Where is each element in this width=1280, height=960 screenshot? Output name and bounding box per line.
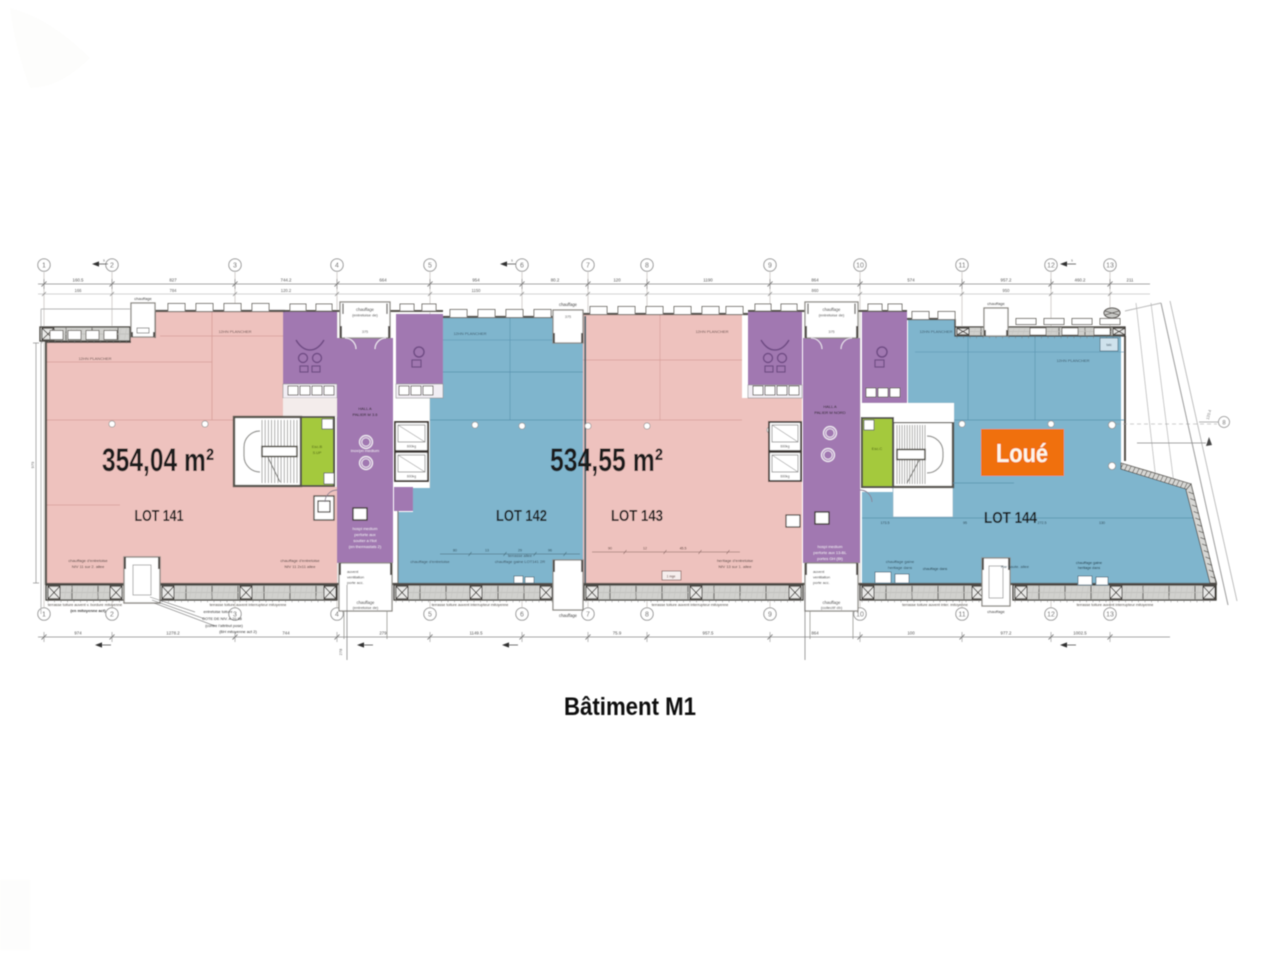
svg-text:LOT 144: LOT 144: [984, 510, 1037, 527]
svg-text:166: 166: [75, 288, 83, 293]
svg-text:(entretoise de): (entretoise de): [819, 313, 845, 318]
svg-text:96: 96: [548, 549, 552, 553]
svg-text:10: 10: [856, 612, 864, 619]
svg-text:744: 744: [282, 631, 290, 636]
svg-text:950: 950: [1003, 288, 1011, 293]
svg-text:Esc.B: Esc.B: [312, 444, 323, 449]
svg-text:864: 864: [811, 278, 819, 283]
svg-text:COTE DE NIV. A 20.88: COTE DE NIV. A 20.88: [202, 616, 242, 621]
svg-text:perforte aux: perforte aux: [354, 532, 375, 537]
svg-text:terrasse toiture auvent v. bor: terrasse toiture auvent v. bordure mitoy…: [48, 603, 122, 607]
svg-text:Loué: Loué: [996, 438, 1048, 468]
svg-text:864: 864: [811, 631, 819, 636]
svg-text:NIV 13 sur 1. allee: NIV 13 sur 1. allee: [719, 564, 753, 569]
svg-text:6: 6: [520, 612, 524, 619]
svg-text:(BH mitoyenne act 2): (BH mitoyenne act 2): [219, 629, 257, 634]
svg-text:534,55 m²: 534,55 m²: [550, 442, 663, 478]
svg-text:entretoise toiture: entretoise toiture: [204, 609, 233, 614]
svg-text:600kg: 600kg: [780, 445, 789, 449]
svg-text:130: 130: [1099, 521, 1105, 525]
svg-text:12HN PLANCHER: 12HN PLANCHER: [695, 329, 728, 334]
svg-text:12HN PLANCHER: 12HN PLANCHER: [78, 356, 111, 361]
svg-text:soutier a l'ilot: soutier a l'ilot: [353, 538, 377, 543]
svg-text:PALIER M 3.6: PALIER M 3.6: [352, 412, 378, 417]
svg-text:75.9: 75.9: [613, 631, 622, 636]
svg-text:terrasse toiture auvent inter.: terrasse toiture auvent inter. mitoyenne: [902, 603, 968, 607]
svg-text:45.5: 45.5: [680, 547, 687, 551]
svg-text:chauffage d'entretoise: chauffage d'entretoise: [68, 558, 108, 563]
svg-text:120.2: 120.2: [281, 288, 292, 293]
svg-text:12: 12: [643, 547, 647, 551]
svg-text:574: 574: [907, 278, 915, 283]
svg-text:11: 11: [958, 263, 965, 270]
svg-text:hospi medium: hospi medium: [818, 544, 844, 549]
svg-text:Bâtiment M1: Bâtiment M1: [564, 693, 696, 721]
svg-text:portes GH (Bt): portes GH (Bt): [817, 556, 843, 561]
svg-text:10: 10: [856, 263, 864, 270]
svg-text:s: s: [1071, 259, 1073, 263]
svg-text:HALL A: HALL A: [823, 404, 837, 409]
svg-text:chauffage: chauffage: [559, 613, 578, 618]
svg-text:S.UP: S.UP: [313, 451, 322, 455]
svg-text:12HN PLANCHER: 12HN PLANCHER: [453, 331, 486, 336]
svg-text:977.2: 977.2: [1001, 631, 1013, 636]
svg-text:1 mge: 1 mge: [667, 575, 676, 579]
svg-text:3: 3: [233, 263, 237, 270]
svg-text:12HN PLANCHER: 12HN PLANCHER: [218, 329, 251, 334]
svg-text:LOT 142: LOT 142: [496, 508, 547, 525]
svg-text:heritage d'entretoise: heritage d'entretoise: [717, 558, 754, 563]
svg-text:211: 211: [1127, 278, 1135, 283]
svg-text:terrasse toiture auvent interr: terrasse toiture auvent interrupteur mit…: [210, 603, 287, 607]
svg-text:5: 5: [428, 612, 432, 619]
svg-text:(entretoise de): (entretoise de): [353, 605, 379, 610]
svg-text:talc: talc: [1106, 343, 1112, 347]
svg-text:744.2: 744.2: [281, 278, 293, 283]
svg-text:957.2: 957.2: [1001, 278, 1013, 283]
svg-text:80: 80: [453, 549, 457, 553]
svg-text:Esc.C: Esc.C: [872, 446, 883, 451]
svg-text:12HN PLANCHER: 12HN PLANCHER: [919, 329, 952, 334]
svg-text:perforte aux 13-BL: perforte aux 13-BL: [813, 550, 847, 555]
svg-text:chauffage gaine: chauffage gaine: [1076, 561, 1102, 565]
svg-text:375: 375: [828, 330, 834, 334]
svg-text:1: 1: [42, 612, 46, 619]
svg-text:173.5: 173.5: [881, 521, 890, 525]
svg-text:chauffage: chauffage: [559, 302, 578, 307]
svg-text:90: 90: [608, 547, 612, 551]
svg-text:porte acc.: porte acc.: [347, 581, 364, 585]
svg-text:7: 7: [586, 612, 590, 619]
svg-text:4: 4: [335, 263, 339, 270]
svg-text:460.2: 460.2: [1075, 278, 1087, 283]
svg-text:LOT 141: LOT 141: [135, 508, 184, 525]
svg-text:8: 8: [645, 612, 649, 619]
svg-text:375: 375: [565, 315, 571, 319]
svg-text:ventilation: ventilation: [813, 576, 830, 580]
svg-text:(en thermastats 2): (en thermastats 2): [349, 544, 382, 549]
svg-text:auvent: auvent: [347, 570, 359, 574]
svg-text:chauffage: chauffage: [987, 609, 1005, 614]
svg-text:NIV 11 sur 2. allee: NIV 11 sur 2. allee: [72, 564, 105, 569]
svg-text:terrasse toiture auvent interr: terrasse toiture auvent interrupteur mit…: [432, 603, 509, 607]
svg-text:terrasse toiture auvent interr: terrasse toiture auvent interrupteur mit…: [652, 603, 729, 607]
svg-text:2: 2: [110, 263, 114, 270]
svg-text:(en mitoyenne act): (en mitoyenne act): [70, 608, 106, 613]
svg-text:1278.2: 1278.2: [166, 631, 180, 636]
svg-text:12HN PLANCHER: 12HN PLANCHER: [1056, 358, 1089, 363]
svg-text:827: 827: [169, 278, 177, 283]
svg-text:375: 375: [362, 330, 368, 334]
svg-text:957.5: 957.5: [703, 631, 715, 636]
svg-text:6: 6: [520, 263, 524, 270]
svg-text:354,04 m²: 354,04 m²: [102, 442, 214, 478]
svg-text:29: 29: [518, 549, 522, 553]
svg-text:Par haute. allee: Par haute. allee: [1001, 564, 1030, 569]
svg-text:1: 1: [42, 263, 46, 270]
svg-text:2: 2: [110, 612, 114, 619]
svg-text:13: 13: [1106, 263, 1114, 270]
svg-text:974: 974: [74, 631, 82, 636]
svg-text:13: 13: [485, 549, 489, 553]
svg-text:heritage dans: heritage dans: [1078, 566, 1101, 570]
svg-text:(collectif db): (collectif db): [821, 605, 843, 610]
svg-text:NIV 11 2x11 allee: NIV 11 2x11 allee: [285, 564, 317, 569]
svg-text:8: 8: [645, 263, 649, 270]
svg-text:s: s: [511, 259, 513, 263]
svg-text:chauffage gaine: chauffage gaine: [886, 559, 915, 564]
svg-text:(entretoise de): (entretoise de): [352, 313, 378, 318]
svg-text:chauffage: chauffage: [987, 301, 1005, 306]
svg-text:954: 954: [472, 278, 480, 283]
svg-text:600kg: 600kg: [407, 445, 416, 449]
svg-text:120: 120: [613, 278, 621, 283]
svg-text:11: 11: [958, 612, 965, 619]
svg-text:12: 12: [1047, 263, 1055, 270]
svg-text:7: 7: [586, 263, 590, 270]
svg-text:600kg: 600kg: [407, 475, 416, 479]
svg-text:HALL A: HALL A: [358, 406, 372, 411]
svg-text:979: 979: [30, 461, 35, 468]
svg-text:160.5: 160.5: [73, 278, 85, 283]
svg-text:784: 784: [170, 288, 178, 293]
svg-text:1150: 1150: [471, 288, 481, 293]
svg-text:heritage dans: heritage dans: [888, 565, 912, 570]
svg-text:9: 9: [768, 263, 772, 270]
svg-text:4: 4: [335, 612, 339, 619]
svg-text:279: 279: [379, 631, 387, 636]
svg-text:LOT 143: LOT 143: [611, 508, 663, 525]
svg-text:chauffage gaine LOT141 2R: chauffage gaine LOT141 2R: [495, 559, 545, 564]
svg-text:hospi medium: hospi medium: [353, 526, 379, 531]
svg-text:664: 664: [379, 278, 387, 283]
svg-text:chauffage: chauffage: [134, 296, 152, 301]
svg-text:12: 12: [1047, 612, 1055, 619]
svg-text:278: 278: [338, 648, 343, 655]
svg-text:ventilation: ventilation: [347, 576, 364, 580]
svg-text:272.5: 272.5: [1038, 521, 1047, 525]
svg-text:9: 9: [768, 612, 772, 619]
svg-text:600kg: 600kg: [780, 475, 789, 479]
svg-text:chauffage: chauffage: [823, 307, 842, 312]
svg-text:chauffage d'entretoise: chauffage d'entretoise: [410, 559, 450, 564]
svg-text:auvent: auvent: [813, 570, 825, 574]
svg-text:100: 100: [907, 631, 915, 636]
svg-text:PALIER M NORD: PALIER M NORD: [814, 410, 845, 415]
svg-text:95: 95: [963, 521, 967, 525]
svg-text:chauffage dans: chauffage dans: [923, 567, 948, 571]
svg-text:1002.5: 1002.5: [1073, 631, 1087, 636]
svg-text:5: 5: [428, 263, 432, 270]
svg-text:chauffage: chauffage: [356, 307, 375, 312]
svg-text:chauffage d'entretoise: chauffage d'entretoise: [280, 558, 320, 563]
svg-text:terrasse toiture auvent interr: terrasse toiture auvent interrupteur mit…: [1077, 603, 1154, 607]
svg-text:porte acc.: porte acc.: [813, 581, 830, 585]
svg-text:13: 13: [1106, 612, 1114, 619]
svg-text:1149.5: 1149.5: [469, 631, 483, 636]
svg-text:s: s: [103, 259, 105, 263]
svg-text:1190: 1190: [703, 278, 713, 283]
svg-text:80.2: 80.2: [551, 278, 560, 283]
svg-text:860: 860: [812, 288, 820, 293]
svg-text:(contre l'attribut pose): (contre l'attribut pose): [205, 623, 243, 628]
